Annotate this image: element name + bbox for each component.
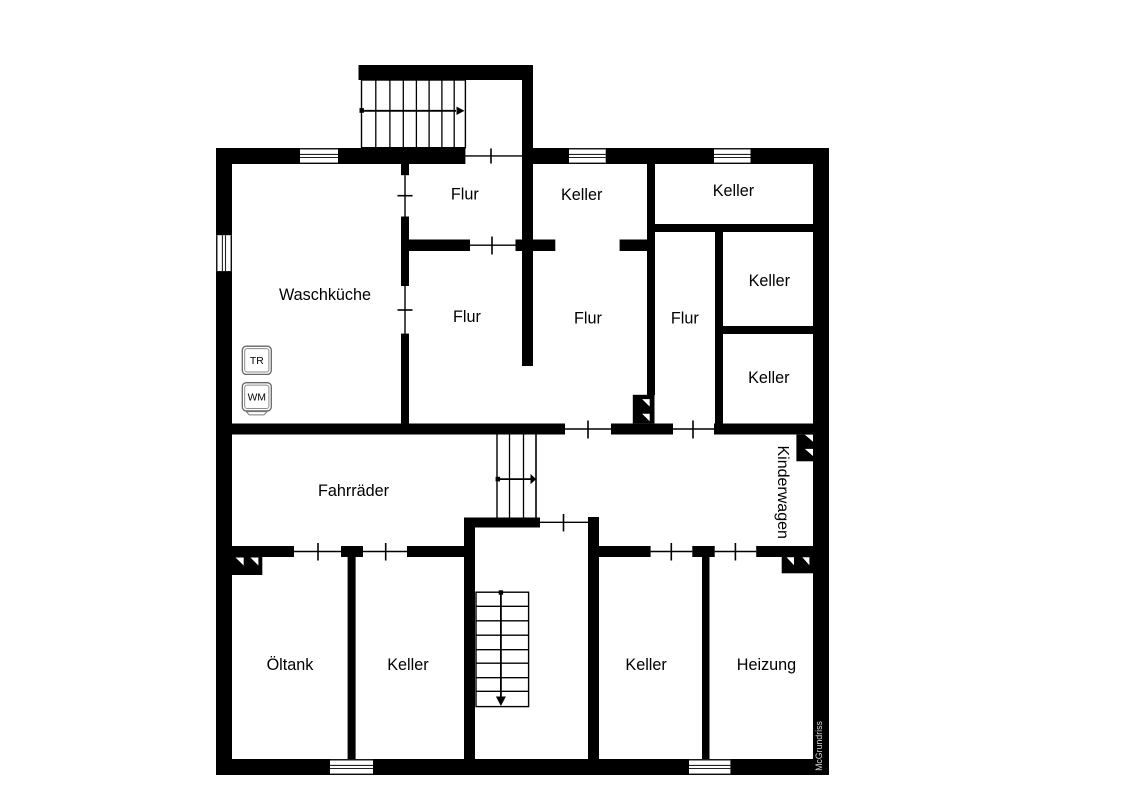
- svg-text:Kinderwagen: Kinderwagen: [774, 445, 791, 538]
- svg-text:Keller: Keller: [713, 182, 755, 200]
- svg-text:Keller: Keller: [561, 186, 603, 204]
- svg-text:Heizung: Heizung: [737, 656, 796, 674]
- svg-text:Waschküche: Waschküche: [279, 286, 371, 304]
- svg-text:Keller: Keller: [748, 369, 790, 387]
- svg-text:WM: WM: [248, 393, 266, 404]
- svg-text:Keller: Keller: [387, 656, 429, 674]
- svg-text:Keller: Keller: [749, 272, 791, 290]
- svg-text:Fahrräder: Fahrräder: [318, 482, 390, 500]
- svg-text:Flur: Flur: [453, 308, 481, 326]
- svg-text:Öltank: Öltank: [267, 656, 315, 674]
- svg-text:Flur: Flur: [671, 310, 699, 328]
- svg-text:TR: TR: [250, 356, 264, 367]
- svg-text:McGrundriss: McGrundriss: [814, 720, 824, 770]
- svg-text:Flur: Flur: [451, 186, 479, 204]
- svg-text:Flur: Flur: [574, 310, 602, 328]
- svg-text:Keller: Keller: [625, 656, 667, 674]
